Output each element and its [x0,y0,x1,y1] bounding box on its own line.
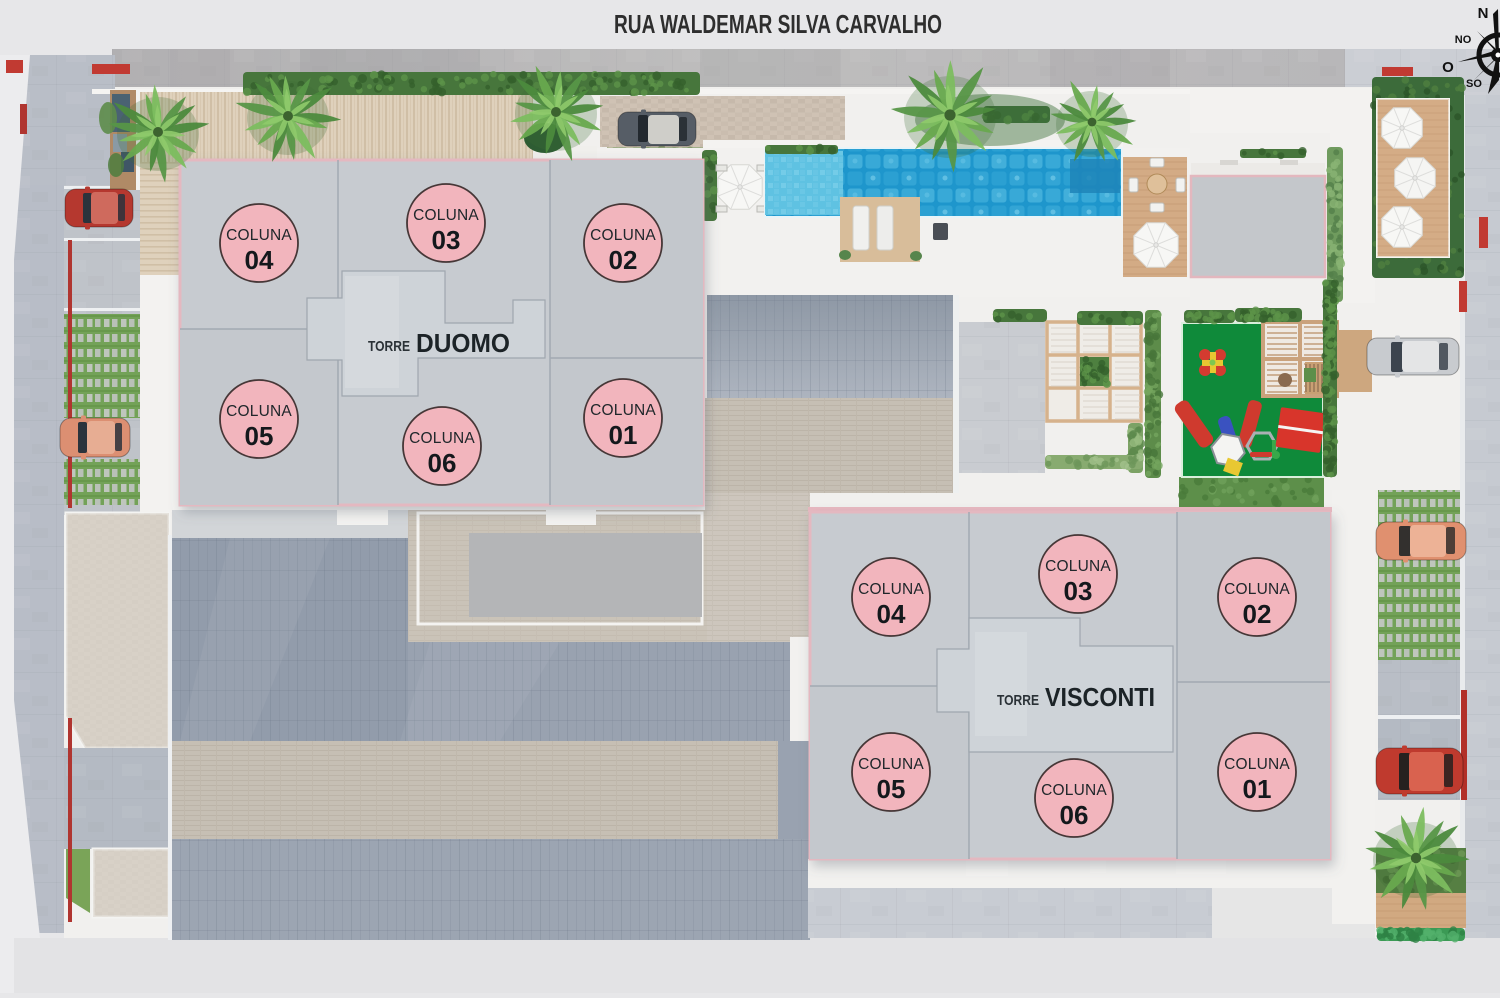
svg-text:TORRE: TORRE [997,692,1039,709]
svg-text:03: 03 [432,225,461,255]
svg-text:N: N [1478,5,1489,22]
svg-text:COLUNA: COLUNA [226,227,292,244]
svg-text:01: 01 [609,420,638,450]
svg-text:O: O [1442,59,1454,76]
svg-text:04: 04 [245,245,274,275]
svg-text:VISCONTI: VISCONTI [1045,682,1155,712]
svg-text:02: 02 [1243,599,1272,629]
svg-text:01: 01 [1243,774,1272,804]
svg-text:02: 02 [609,245,638,275]
svg-text:COLUNA: COLUNA [1224,756,1290,773]
svg-text:NO: NO [1455,34,1472,46]
svg-text:COLUNA: COLUNA [858,581,924,598]
svg-text:COLUNA: COLUNA [413,207,479,224]
svg-text:COLUNA: COLUNA [1041,782,1107,799]
svg-text:TORRE: TORRE [368,338,410,355]
svg-text:COLUNA: COLUNA [590,402,656,419]
svg-text:COLUNA: COLUNA [1045,558,1111,575]
svg-text:05: 05 [245,421,274,451]
svg-text:COLUNA: COLUNA [226,403,292,420]
svg-text:06: 06 [1060,800,1089,830]
svg-text:05: 05 [877,774,906,804]
svg-text:COLUNA: COLUNA [1224,581,1290,598]
svg-text:04: 04 [877,599,906,629]
svg-text:COLUNA: COLUNA [409,430,475,447]
svg-text:RUA WALDEMAR SILVA CARVALHO: RUA WALDEMAR SILVA CARVALHO [614,9,942,39]
svg-text:06: 06 [428,448,457,478]
svg-text:03: 03 [1064,576,1093,606]
svg-text:SO: SO [1466,78,1482,90]
svg-text:DUOMO: DUOMO [416,328,510,358]
svg-text:COLUNA: COLUNA [590,227,656,244]
svg-text:COLUNA: COLUNA [858,756,924,773]
